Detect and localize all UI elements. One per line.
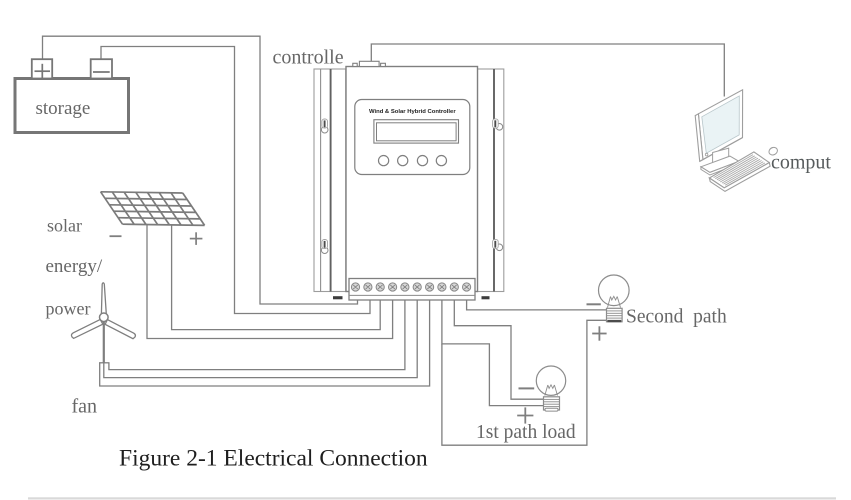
svg-text:energy/: energy/ — [46, 256, 103, 277]
svg-text:power: power — [46, 299, 91, 319]
svg-text:1st path load: 1st path load — [476, 422, 576, 443]
svg-text:solar: solar — [47, 216, 82, 236]
svg-text:Second path: Second path — [626, 307, 727, 328]
svg-text:comput: comput — [771, 152, 831, 174]
svg-text:controlle: controlle — [273, 47, 344, 69]
svg-text:Figure 2-1 Electrical Connecti: Figure 2-1 Electrical Connection — [119, 446, 428, 472]
svg-text:Wind & Solar Hybrid Controller: Wind & Solar Hybrid Controller — [369, 109, 456, 115]
svg-text:storage: storage — [36, 98, 91, 119]
svg-text:fan: fan — [72, 396, 98, 418]
